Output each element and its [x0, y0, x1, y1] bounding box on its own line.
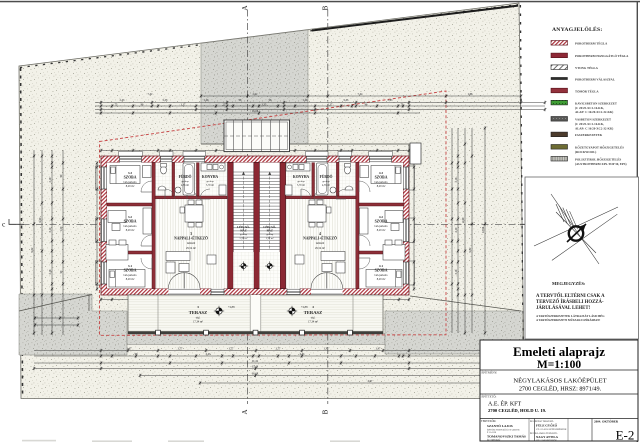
svg-text:2,43: 2,43 — [120, 99, 125, 102]
svg-text:HÁZ: HÁZ — [267, 229, 273, 233]
svg-text:5,35: 5,35 — [344, 99, 349, 102]
svg-text:POLISZTIROL HŐSZIGETELÉS: POLISZTIROL HŐSZIGETELÉS — [575, 157, 621, 162]
svg-text:2,10: 2,10 — [49, 227, 52, 232]
svg-text:6,90: 6,90 — [39, 217, 42, 222]
svg-text:8,29 m²: 8,29 m² — [377, 229, 386, 232]
svg-text:A TARTÓSZERKEZETI MŰSZAKI LEÍR: A TARTÓSZERKEZETI MŰSZAKI LEÍRÁSBAN! — [536, 318, 600, 322]
svg-text:(ROCKWOOL): (ROCKWOOL) — [575, 150, 596, 154]
svg-text:2700 CEGLÉD, HRSZ: 8971/49.: 2700 CEGLÉD, HRSZ: 8971/49. — [519, 385, 602, 393]
svg-text:16,08: 16,08 — [252, 110, 259, 113]
svg-text:lam.parketta: lam.parketta — [124, 181, 138, 184]
svg-text:greslap: greslap — [181, 180, 189, 183]
svg-text:4.3: 4.3 — [379, 171, 384, 175]
svg-text:ÉPÍTTETŐ:: ÉPÍTTETŐ: — [482, 394, 497, 399]
svg-text:1,77: 1,77 — [324, 348, 329, 351]
svg-text:3,35: 3,35 — [262, 103, 267, 106]
svg-text:17,34 m²: 17,34 m² — [308, 321, 318, 324]
svg-text:1,47: 1,47 — [127, 348, 132, 351]
svg-text:NAGY ATTILA: NAGY ATTILA — [536, 435, 559, 439]
svg-text:+2,88: +2,88 — [228, 306, 235, 309]
svg-text:1,77: 1,77 — [229, 348, 234, 351]
svg-text:A TERVTŐL ELTÉRNI CSAK A: A TERVTŐL ELTÉRNI CSAK A — [536, 293, 605, 299]
svg-text:TOMANOVSZKI TAMÁS: TOMANOVSZKI TAMÁS — [487, 434, 526, 439]
svg-text:8,29 m²: 8,29 m² — [377, 185, 386, 188]
svg-text:HÁZ: HÁZ — [240, 229, 246, 233]
svg-text:1,40: 1,40 — [204, 99, 209, 102]
svg-text:8,29 m²: 8,29 m² — [126, 229, 135, 232]
svg-text:FASZERKEZETEK: FASZERKEZETEK — [575, 133, 603, 137]
svg-text:TÖMÖR TÉGLA: TÖMÖR TÉGLA — [575, 88, 599, 93]
svg-text:E-2: E-2 — [616, 428, 635, 442]
svg-text:lam.parketta: lam.parketta — [124, 274, 138, 277]
svg-text:29,54 m²: 29,54 m² — [186, 247, 196, 250]
svg-text:YTONG TÉGLA: YTONG TÉGLA — [575, 65, 599, 70]
svg-text:7,42: 7,42 — [148, 93, 153, 96]
svg-text:M=1:100: M=1:100 — [537, 359, 581, 371]
svg-text:(C 20/25-XC1-16-KK,: (C 20/25-XC1-16-KK, — [575, 106, 604, 110]
svg-text:tégl.: tégl. — [311, 317, 316, 320]
svg-text:2,18: 2,18 — [455, 177, 458, 182]
svg-text:tégl.: tégl. — [196, 317, 201, 320]
svg-text:+2,88: +2,88 — [301, 306, 308, 309]
svg-text:2700 CEGLÉD, HOLD U. 19.: 2700 CEGLÉD, HOLD U. 19. — [488, 408, 546, 413]
svg-text:2,43: 2,43 — [388, 99, 393, 102]
svg-text:FÜRDŐ: FÜRDŐ — [179, 174, 192, 179]
svg-text:lam.parketta: lam.parketta — [375, 225, 389, 228]
svg-text:SZOBA: SZOBA — [375, 175, 388, 179]
svg-text:1,50: 1,50 — [60, 226, 63, 231]
svg-text:7,42: 7,42 — [358, 93, 363, 96]
svg-text:Emeleti alaprajz: Emeleti alaprajz — [513, 344, 605, 359]
svg-text:lam.parketta: lam.parketta — [375, 274, 389, 277]
svg-text:6,90: 6,90 — [462, 217, 465, 222]
svg-text:1,40: 1,40 — [303, 99, 308, 102]
svg-text:laminált: laminált — [187, 242, 196, 245]
svg-text:ANYAGJELÖLÉS:: ANYAGJELÖLÉS: — [552, 25, 602, 33]
svg-text:greslap: greslap — [266, 233, 274, 236]
svg-text:3.3: 3.3 — [128, 171, 133, 175]
svg-text:3.1: 3.1 — [128, 264, 133, 268]
svg-text:lam.parketta: lam.parketta — [124, 225, 138, 228]
svg-text:VASBETON SZERKEZET: VASBETON SZERKEZET — [575, 118, 612, 122]
svg-text:GT-1 13-0258 GÉPÉSZMÉRNÖK: GT-1 13-0258 GÉPÉSZMÉRNÖK — [536, 428, 567, 431]
svg-text:29,54 m²: 29,54 m² — [315, 247, 325, 250]
svg-text:8,29 m²: 8,29 m² — [126, 278, 135, 281]
svg-text:4: 4 — [312, 305, 314, 309]
svg-text:POROTHERM VÁLASZFAL: POROTHERM VÁLASZFAL — [575, 76, 615, 81]
svg-text:B: B — [321, 5, 329, 10]
svg-text:2,18: 2,18 — [455, 269, 458, 274]
svg-text:greslap: greslap — [322, 180, 330, 183]
svg-text:TERVEZŐ ÍRÁSBELI HOZZÁ-: TERVEZŐ ÍRÁSBELI HOZZÁ- — [536, 299, 604, 305]
svg-text:JÁRULÁSÁVAL LEHET!: JÁRULÁSÁVAL LEHET! — [536, 305, 591, 311]
svg-text:1,17: 1,17 — [328, 103, 333, 106]
svg-text:11,41: 11,41 — [252, 360, 259, 363]
svg-text:POROTHERM HANGGÁTLÓ TÉGLA: POROTHERM HANGGÁTLÓ TÉGLA — [575, 53, 629, 58]
svg-text:16,08: 16,08 — [252, 373, 259, 376]
svg-text:ÉPÍTMÉNY:: ÉPÍTMÉNY: — [482, 370, 498, 375]
svg-text:MEGJEGYZÉS:: MEGJEGYZÉS: — [552, 281, 586, 286]
svg-text:B: B — [321, 409, 329, 414]
svg-text:4,35 m²: 4,35 m² — [322, 184, 330, 187]
svg-text:TERVEZŐK:: TERVEZŐK: — [481, 420, 497, 423]
svg-text:SZANTÓ LAJOS: SZANTÓ LAJOS — [487, 423, 513, 428]
svg-text:NAPPALI+ÉTKEZŐ: NAPPALI+ÉTKEZŐ — [174, 236, 208, 241]
svg-text:A: A — [241, 409, 249, 414]
svg-text:A.E. ÉP. KFT: A.E. ÉP. KFT — [488, 400, 522, 408]
svg-text:greslap: greslap — [206, 180, 214, 183]
svg-text:8,29 m²: 8,29 m² — [377, 278, 386, 281]
svg-text:2004. OKTÓBER: 2004. OKTÓBER — [594, 419, 619, 424]
svg-text:(AUSTROTHERM XPS-TOP 30, EPS): (AUSTROTHERM XPS-TOP 30, EPS) — [575, 162, 627, 166]
svg-text:9,02: 9,02 — [469, 247, 472, 252]
svg-text:15,48: 15,48 — [252, 366, 259, 369]
svg-text:1,88: 1,88 — [468, 93, 473, 96]
svg-text:12,96: 12,96 — [482, 226, 485, 233]
svg-text:1,47: 1,47 — [376, 348, 381, 351]
svg-text:2,18: 2,18 — [49, 177, 52, 182]
svg-text:KAVICSBETON SZERKEZET: KAVICSBETON SZERKEZET — [575, 101, 618, 105]
svg-text:POROTHERM TÉGLA: POROTHERM TÉGLA — [575, 41, 608, 46]
svg-text:SZOBA: SZOBA — [375, 219, 388, 223]
svg-text:3: 3 — [197, 305, 199, 309]
svg-text:5,92 m²: 5,92 m² — [240, 237, 248, 240]
svg-text:ÉP. TERVEZŐ: ÉP. TERVEZŐ — [487, 439, 501, 442]
svg-text:TERASZ: TERASZ — [189, 310, 207, 315]
svg-text:KŐZETGYAPOT HŐSZIGETELÉS: KŐZETGYAPOT HŐSZIGETELÉS — [575, 145, 624, 150]
svg-text:FÜRDŐ: FÜRDŐ — [320, 174, 333, 179]
svg-text:lam.parketta: lam.parketta — [375, 181, 389, 184]
svg-text:A: A — [241, 5, 249, 10]
svg-text:5,70 m²: 5,70 m² — [206, 184, 214, 187]
svg-text:greslap: greslap — [297, 180, 305, 183]
svg-text:1,77: 1,77 — [276, 348, 281, 351]
svg-text:5,35: 5,35 — [163, 99, 168, 102]
svg-text:4.2: 4.2 — [379, 215, 384, 219]
svg-text:3.2: 3.2 — [128, 215, 133, 219]
svg-text:2,18: 2,18 — [49, 269, 52, 274]
svg-text:9,02: 9,02 — [31, 247, 34, 252]
svg-text:1,77: 1,77 — [178, 348, 183, 351]
svg-text:SZOBA: SZOBA — [375, 268, 388, 272]
svg-text:4.1: 4.1 — [379, 264, 384, 268]
svg-text:5,92 m²: 5,92 m² — [266, 237, 274, 240]
svg-text:FÜLE GYŐZŐ: FÜLE GYŐZŐ — [536, 423, 558, 428]
svg-text:ALAP: C 16/20-XC2-32-KK): ALAP: C 16/20-XC2-32-KK) — [575, 126, 613, 130]
svg-text:SZOBA: SZOBA — [124, 268, 137, 272]
svg-text:NÉGYLAKÁSOS LAKÓÉPÜLET: NÉGYLAKÁSOS LAKÓÉPÜLET — [513, 377, 606, 385]
svg-text:3: 3 — [190, 232, 192, 236]
svg-text:(C 20/25-XC1-16-KK,: (C 20/25-XC1-16-KK, — [575, 122, 604, 126]
svg-text:KONYHA: KONYHA — [202, 175, 219, 179]
svg-text:4,43: 4,43 — [206, 353, 211, 356]
svg-text:greslap: greslap — [240, 233, 248, 236]
svg-text:SZOBA: SZOBA — [124, 219, 137, 223]
svg-text:8,29 m²: 8,29 m² — [126, 185, 135, 188]
svg-text:4,43: 4,43 — [300, 353, 305, 356]
svg-text:NAPPALI+ÉTKEZŐ: NAPPALI+ÉTKEZŐ — [303, 236, 337, 241]
svg-text:4: 4 — [319, 232, 321, 236]
svg-text:SZOBA: SZOBA — [124, 175, 137, 179]
svg-text:ALAP: C 16/20-XC2-32-KK): ALAP: C 16/20-XC2-32-KK) — [575, 110, 613, 114]
svg-text:laminált: laminált — [316, 242, 325, 245]
svg-text:4,07: 4,07 — [368, 380, 373, 383]
svg-text:17,34 m²: 17,34 m² — [193, 321, 203, 324]
svg-text:4,35 m²: 4,35 m² — [181, 184, 189, 187]
svg-text:5,70 m²: 5,70 m² — [297, 184, 305, 187]
svg-text:TERASZ: TERASZ — [304, 310, 322, 315]
svg-text:2,62: 2,62 — [253, 93, 258, 96]
svg-text:2,10: 2,10 — [455, 227, 458, 232]
svg-text:1,17: 1,17 — [181, 103, 186, 106]
svg-text:KONYHA: KONYHA — [293, 175, 310, 179]
